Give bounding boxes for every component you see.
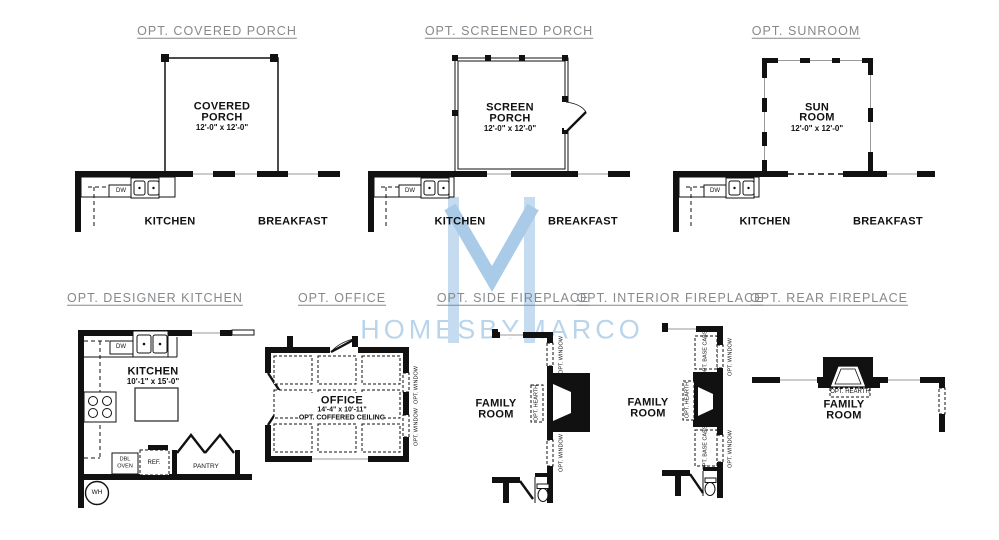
family-room-label: ROOM — [826, 411, 861, 422]
family-room-label: ROOM — [630, 409, 665, 420]
kitchen-room-label: KITCHEN — [128, 367, 179, 378]
opt-hearth-label: OPT. HEARTH — [534, 385, 540, 421]
breakfast-label: BREAKFAST — [548, 217, 618, 228]
office-dims: 14'-4" x 10'-11" — [317, 407, 366, 414]
dishwasher-label: DW — [116, 188, 126, 194]
opt-hearth-label: OPT. HEARTH — [685, 382, 691, 418]
interior-fireplace-plan — [662, 323, 723, 498]
covered-porch-dims: 12'-0" x 12'-0" — [196, 124, 248, 132]
dishwasher-label: DW — [405, 188, 415, 194]
coffered-ceiling-note: OPT. COFFERED CEILING — [299, 415, 385, 422]
office-room-label: OFFICE — [321, 396, 363, 407]
covered-porch-plan — [75, 54, 340, 232]
double-oven-label: OVEN — [117, 464, 133, 470]
designer-kitchen-plan — [78, 330, 254, 508]
kitchen-dims: 10'-1" x 15'-0" — [127, 378, 179, 386]
opt-window-label: OPT. WINDOW — [559, 434, 565, 472]
title-covered-porch: OPT. COVERED PORCH — [137, 25, 297, 38]
water-heater-label: WH — [92, 490, 103, 497]
floor-plan-options-sheet: HOMESBYMARCO — [0, 0, 999, 540]
opt-window-label: OPT. WINDOW — [414, 408, 420, 446]
refrigerator-label: REF. — [147, 460, 160, 466]
sunroom-plan — [673, 58, 935, 232]
screen-porch-room-label: PORCH — [489, 114, 530, 125]
opt-window-label: OPT. WINDOW — [414, 366, 420, 404]
kitchen-label: KITCHEN — [145, 217, 196, 228]
dishwasher-label: DW — [116, 344, 126, 350]
screened-porch-plan — [368, 55, 630, 232]
title-designer-kitchen: OPT. DESIGNER KITCHEN — [67, 292, 243, 305]
floor-plan-linework — [0, 0, 999, 540]
opt-base-cabs-label: OPT. BASE CABS — [703, 331, 709, 376]
opt-window-label: OPT. WINDOW — [559, 336, 565, 374]
screen-porch-dims: 12'-0" x 12'-0" — [484, 125, 536, 133]
kitchen-label: KITCHEN — [435, 217, 486, 228]
title-rear-fireplace: OPT. REAR FIREPLACE — [750, 292, 908, 305]
family-room-label: ROOM — [478, 410, 513, 421]
dishwasher-label: DW — [710, 188, 720, 194]
covered-porch-room-label: PORCH — [201, 113, 242, 124]
kitchen-label: KITCHEN — [740, 217, 791, 228]
opt-base-cabs-label: OPT. BASE CABS — [703, 426, 709, 471]
double-oven-label: DBL — [120, 457, 131, 463]
opt-hearth-label: OPT. HEARTH — [830, 389, 870, 395]
opt-window-label: OPT. WINDOW — [728, 430, 734, 468]
breakfast-label: BREAKFAST — [853, 217, 923, 228]
pantry-label: PANTRY — [193, 464, 219, 471]
title-side-fireplace: OPT. SIDE FIREPLACE — [437, 292, 589, 305]
sunroom-dims: 12'-0" x 12'-0" — [791, 125, 843, 133]
title-screened-porch: OPT. SCREENED PORCH — [425, 25, 593, 38]
title-sunroom: OPT. SUNROOM — [752, 25, 861, 38]
title-office: OPT. OFFICE — [298, 292, 386, 305]
title-interior-fireplace: OPT. INTERIOR FIREPLACE — [577, 292, 764, 305]
breakfast-label: BREAKFAST — [258, 217, 328, 228]
sunroom-room-label: ROOM — [799, 113, 834, 124]
opt-window-label: OPT. WINDOW — [728, 338, 734, 376]
